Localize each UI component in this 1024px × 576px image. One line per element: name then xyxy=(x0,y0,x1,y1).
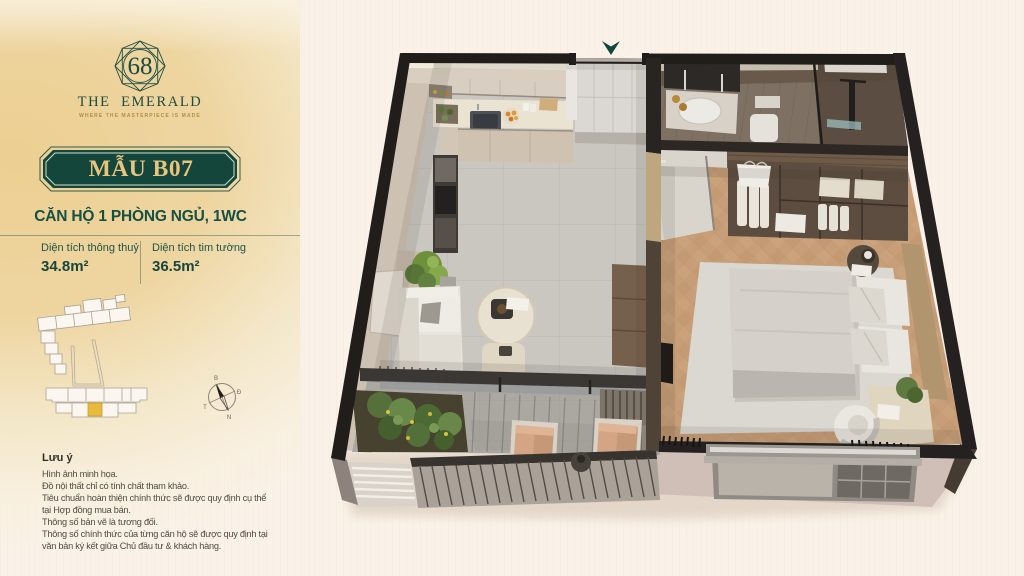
svg-text:B: B xyxy=(214,376,218,382)
svg-text:T: T xyxy=(203,405,207,411)
svg-text:Đ: Đ xyxy=(237,390,242,396)
svg-text:N: N xyxy=(227,415,231,421)
